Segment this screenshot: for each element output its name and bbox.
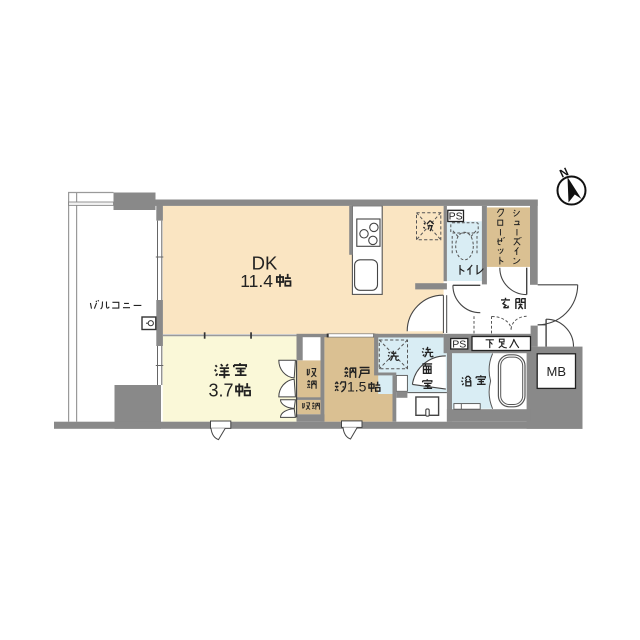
svg-text:3.7: 3.7 bbox=[209, 381, 234, 401]
svg-text:11.4: 11.4 bbox=[240, 271, 273, 291]
svg-text:1.5: 1.5 bbox=[347, 379, 367, 395]
svg-text:MB: MB bbox=[547, 364, 567, 379]
svg-text:PS: PS bbox=[452, 339, 466, 351]
svg-text:PS: PS bbox=[449, 211, 463, 223]
